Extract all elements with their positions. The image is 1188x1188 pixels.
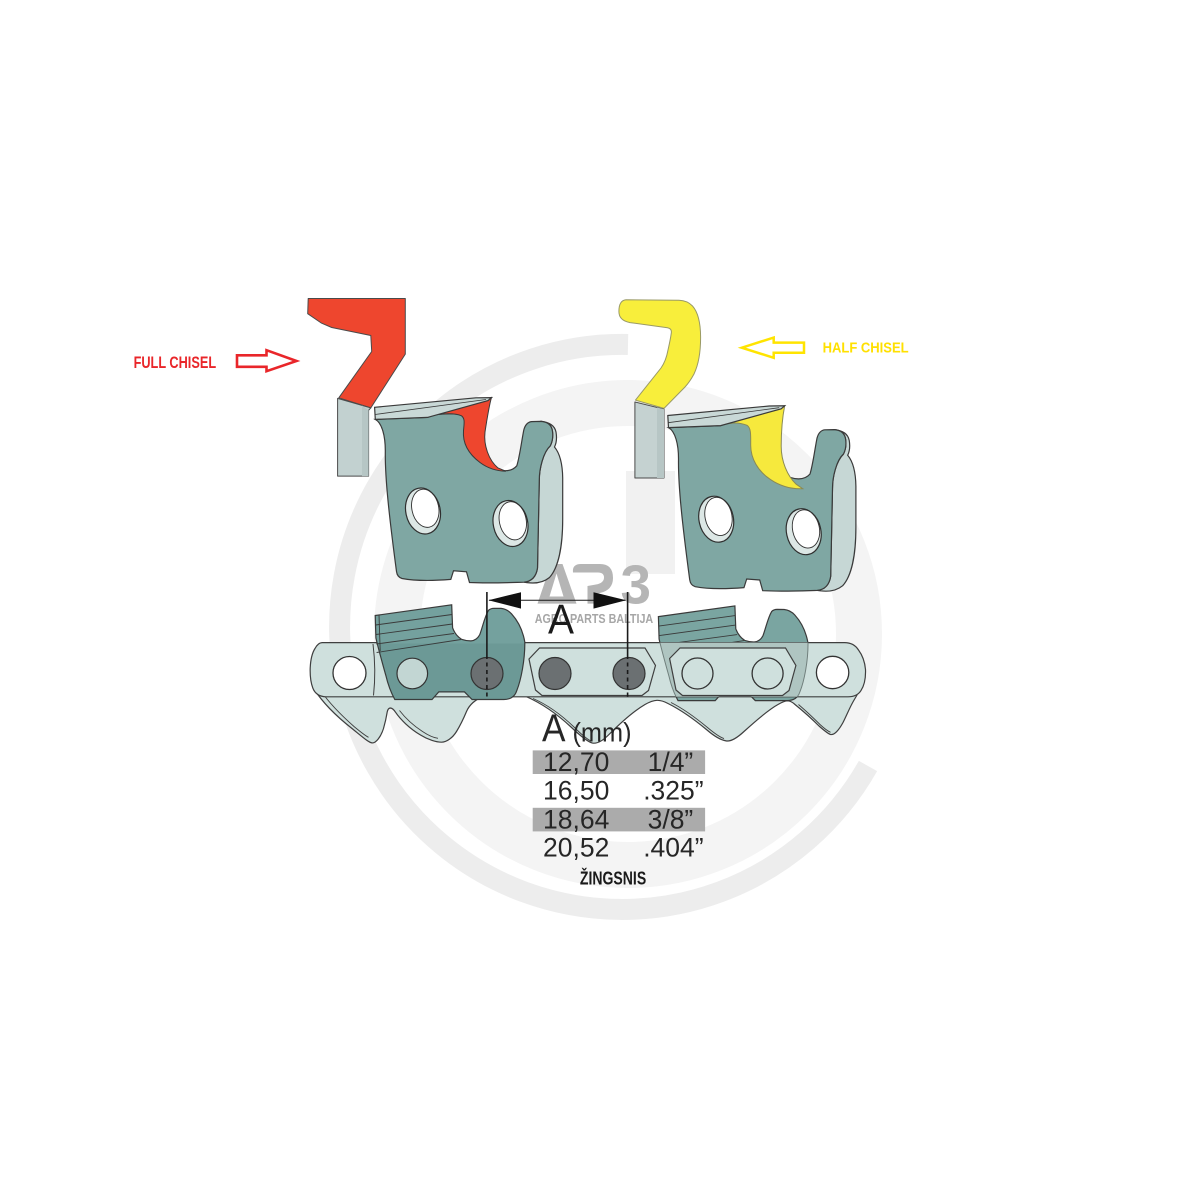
svg-text:ŽINGSNIS: ŽINGSNIS <box>580 868 646 889</box>
svg-text:16,50: 16,50 <box>543 775 609 805</box>
svg-text:FULL CHISEL: FULL CHISEL <box>134 354 217 372</box>
svg-text:A: A <box>542 708 566 751</box>
svg-text:A: A <box>548 596 574 643</box>
svg-text:12,70: 12,70 <box>543 747 609 777</box>
svg-text:20,52: 20,52 <box>543 833 609 863</box>
svg-text:18,64: 18,64 <box>543 804 609 834</box>
svg-text:1/4”: 1/4” <box>648 747 694 777</box>
svg-text:(mm): (mm) <box>573 718 632 748</box>
svg-text:.325”: .325” <box>643 775 703 805</box>
svg-text:HALF CHISEL: HALF CHISEL <box>823 341 909 357</box>
svg-text:.404”: .404” <box>643 833 703 863</box>
svg-text:3: 3 <box>621 554 652 616</box>
svg-text:3/8”: 3/8” <box>648 804 694 834</box>
